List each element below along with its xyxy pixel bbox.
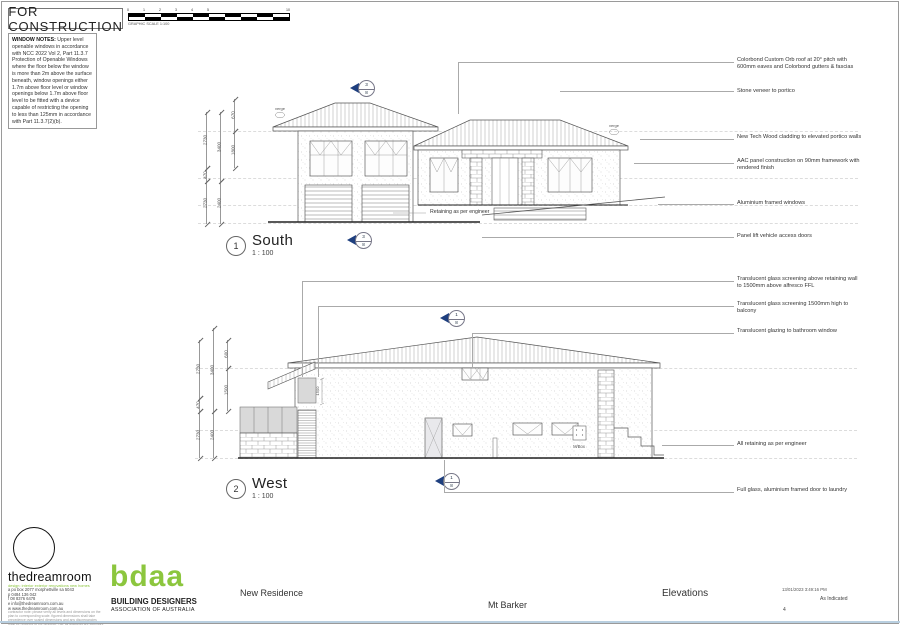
scale-tick: 1 [143,8,145,12]
dimension: 2730 [199,411,200,458]
leader-line [634,163,734,164]
window-notes-body: Upper level openable windows in accordan… [12,37,92,125]
verge-tag: verge [609,123,620,128]
leader-line [458,62,459,114]
designer-contacts: a po box 2077 morphettville sa 5043 p 04… [8,588,74,612]
verge-tag: verge [275,106,286,111]
view-name: South [252,232,293,249]
scale-bar-label: GRAPHIC SCALE 1:100 [128,22,290,26]
note-windows: Aluminium framed windows [737,200,863,207]
leader-line [560,91,734,92]
scale-note: As Indicated [820,596,848,602]
thedreamroom-logo-icon [13,527,55,569]
dimension: 1800 [234,131,235,168]
leader-line [472,333,473,367]
dimension: 2730 [206,112,207,168]
window-notes-title: WINDOW NOTES: [12,37,56,43]
scale-tick: 10 [286,8,290,12]
drawing-sheet: FOR CONSTRUCTION 0 1 2 3 4 5 10 GRAPHIC … [0,0,900,625]
note-aac-panel: AAC panel construction on 90mm framework… [737,158,863,172]
dimension: 2730 [199,340,200,398]
scale-tick: 3 [175,8,177,12]
leader-line [458,62,734,63]
elevation-marker-icon: 38 [347,232,373,248]
leader-line [302,281,303,377]
sheet-title: Elevations [662,588,708,599]
view-scale: 1 : 100 [252,493,288,500]
dimension: 3400 [213,328,214,411]
graphic-scale-bar: 0 1 2 3 4 5 10 GRAPHIC SCALE 1:100 [128,8,290,26]
note-laundry-door: Full glass, aluminium framed door to lau… [737,487,863,494]
leader-line [482,237,734,238]
leader-line [318,306,319,377]
leader-line [444,492,734,493]
dimension: 470 [206,168,207,181]
note-screen-balcony: Translucent glass screening 1500mm high … [737,301,863,315]
dimension: 600 [227,340,228,368]
project-name: New Residence [240,588,303,598]
scale-tick: 4 [191,8,193,12]
note-roof: Colorbond Custom Orb roof at 20° pitch w… [737,57,863,71]
retaining-note: Retaining as per engineer [430,209,489,215]
for-construction-stamp: FOR CONSTRUCTION [8,8,123,29]
view-scale: 1 : 100 [252,250,293,257]
designer-name: thedreamroom [8,570,92,584]
bdaa-line1: BUILDING DESIGNERS [111,597,197,606]
south-view-title: 1 South 1 : 100 [226,232,293,257]
note-cladding: New Tech Wood cladding to elevated porti… [737,134,863,141]
scale-tick: 0 [127,8,129,12]
dimension: 2400 [213,411,214,458]
dimension: 2730 [206,181,207,224]
note-screen-retaining: Translucent glass screening above retain… [737,276,863,290]
dimension: 1500 [227,368,228,411]
print-datetime: 13/01/2023 3:49:16 PM [782,587,827,592]
bdaa-logo-icon: bdaa [110,560,184,594]
dimension: 470 [199,398,200,411]
note-stone-veneer: Stone veneer to portico [737,88,863,95]
leader-line [662,445,734,446]
bottom-edge-line [0,621,900,623]
sheet-number: 4 [783,607,786,613]
west-elevation-drawing: 1500 M/Box [225,325,675,470]
mailbox-label: M/Box [573,444,586,449]
leader-line [318,306,734,307]
note-translucent-glazing: Translucent glazing to bathroom window [737,328,863,335]
leader-line [302,281,734,282]
window-notes: WINDOW NOTES: Upper level openable windo… [8,33,97,129]
dimension: 3400 [220,112,221,181]
bdaa-line2: ASSOCIATION OF AUSTRALIA [111,607,195,613]
leader-line [472,333,734,334]
view-number: 2 [226,479,246,499]
leader-line [444,460,445,492]
project-location: Mt Barker [488,600,527,610]
west-view-title: 2 West 1 : 100 [226,475,288,500]
leader-line [640,139,734,140]
leader-line [658,204,734,205]
elevation-marker-icon: 18 [435,473,461,489]
elevation-marker-icon: 18 [440,310,466,326]
dimension: 670 [234,99,235,131]
note-retaining: All retaining as per engineer [737,441,863,448]
screen-dim: 1500 [315,386,320,396]
dimension: 2400 [220,181,221,224]
note-garage-doors: Panel lift vehicle access doors [737,233,863,240]
view-number: 1 [226,236,246,256]
view-name: West [252,475,288,492]
scale-tick: 2 [159,8,161,12]
scale-tick: 5 [207,8,209,12]
elevation-marker-icon: 38 [350,80,376,96]
